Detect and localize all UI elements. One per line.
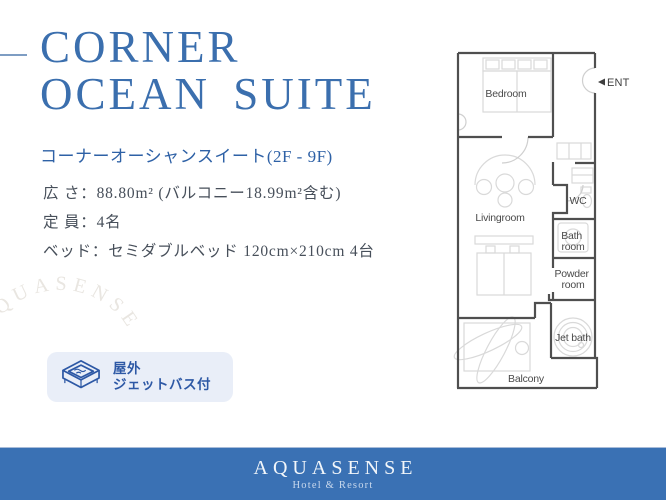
title-line2: OCEAN SUITE [40,71,376,118]
entrance-arrow-icon [598,79,605,86]
badge-label-line2: ジェットバス付 [113,377,211,394]
room-label-jet-bath: Jet bath [555,332,591,344]
floor-plan: Bedroom Livingroom WC Bath room Powder r… [440,40,666,400]
brand-watermark: AQUASENSE [0,240,210,440]
detail-row-bed: ベッド：セミダブルベッド 120cm×210cm 4台 [43,238,375,267]
brand-tagline: Hotel & Resort [293,480,374,491]
page-subtitle: コーナーオーシャンスイート(2F - 9F) [40,142,333,167]
detail-row-capacity: 定 員：4名 [43,209,375,238]
badge-text: 屋外 ジェットバス付 [113,361,211,394]
room-label-balcony: Balcony [508,373,545,385]
detail-row-area: 広 さ：88.80m² (バルコニー18.99m²含む) [43,180,375,209]
room-label-powder-room: Powder room [554,268,591,291]
page-title: CORNER OCEAN SUITE [40,24,376,118]
jet-bath-icon [60,358,102,396]
watermark-text: AQUASENSE [0,273,145,335]
room-label-bedroom: Bedroom [485,88,527,100]
title-line1: CORNER [40,24,376,71]
footer-brand-bar: AQUASENSE Hotel & Resort [0,447,666,500]
brochure-page: CORNER OCEAN SUITE コーナーオーシャンスイート(2F - 9F… [0,0,666,500]
jet-bath-badge: 屋外 ジェットバス付 [47,352,233,402]
room-details: 広 さ：88.80m² (バルコニー18.99m²含む) 定 員：4名 ベッド：… [43,180,375,266]
title-dash [0,54,27,56]
room-label-wc: WC [569,195,587,207]
room-label-livingroom: Livingroom [475,212,525,224]
entrance-label: ENT [607,77,630,89]
badge-label-line1: 屋外 [113,361,211,378]
brand-logo: AQUASENSE [249,457,418,479]
room-label-bathroom: Bath room [561,230,585,253]
